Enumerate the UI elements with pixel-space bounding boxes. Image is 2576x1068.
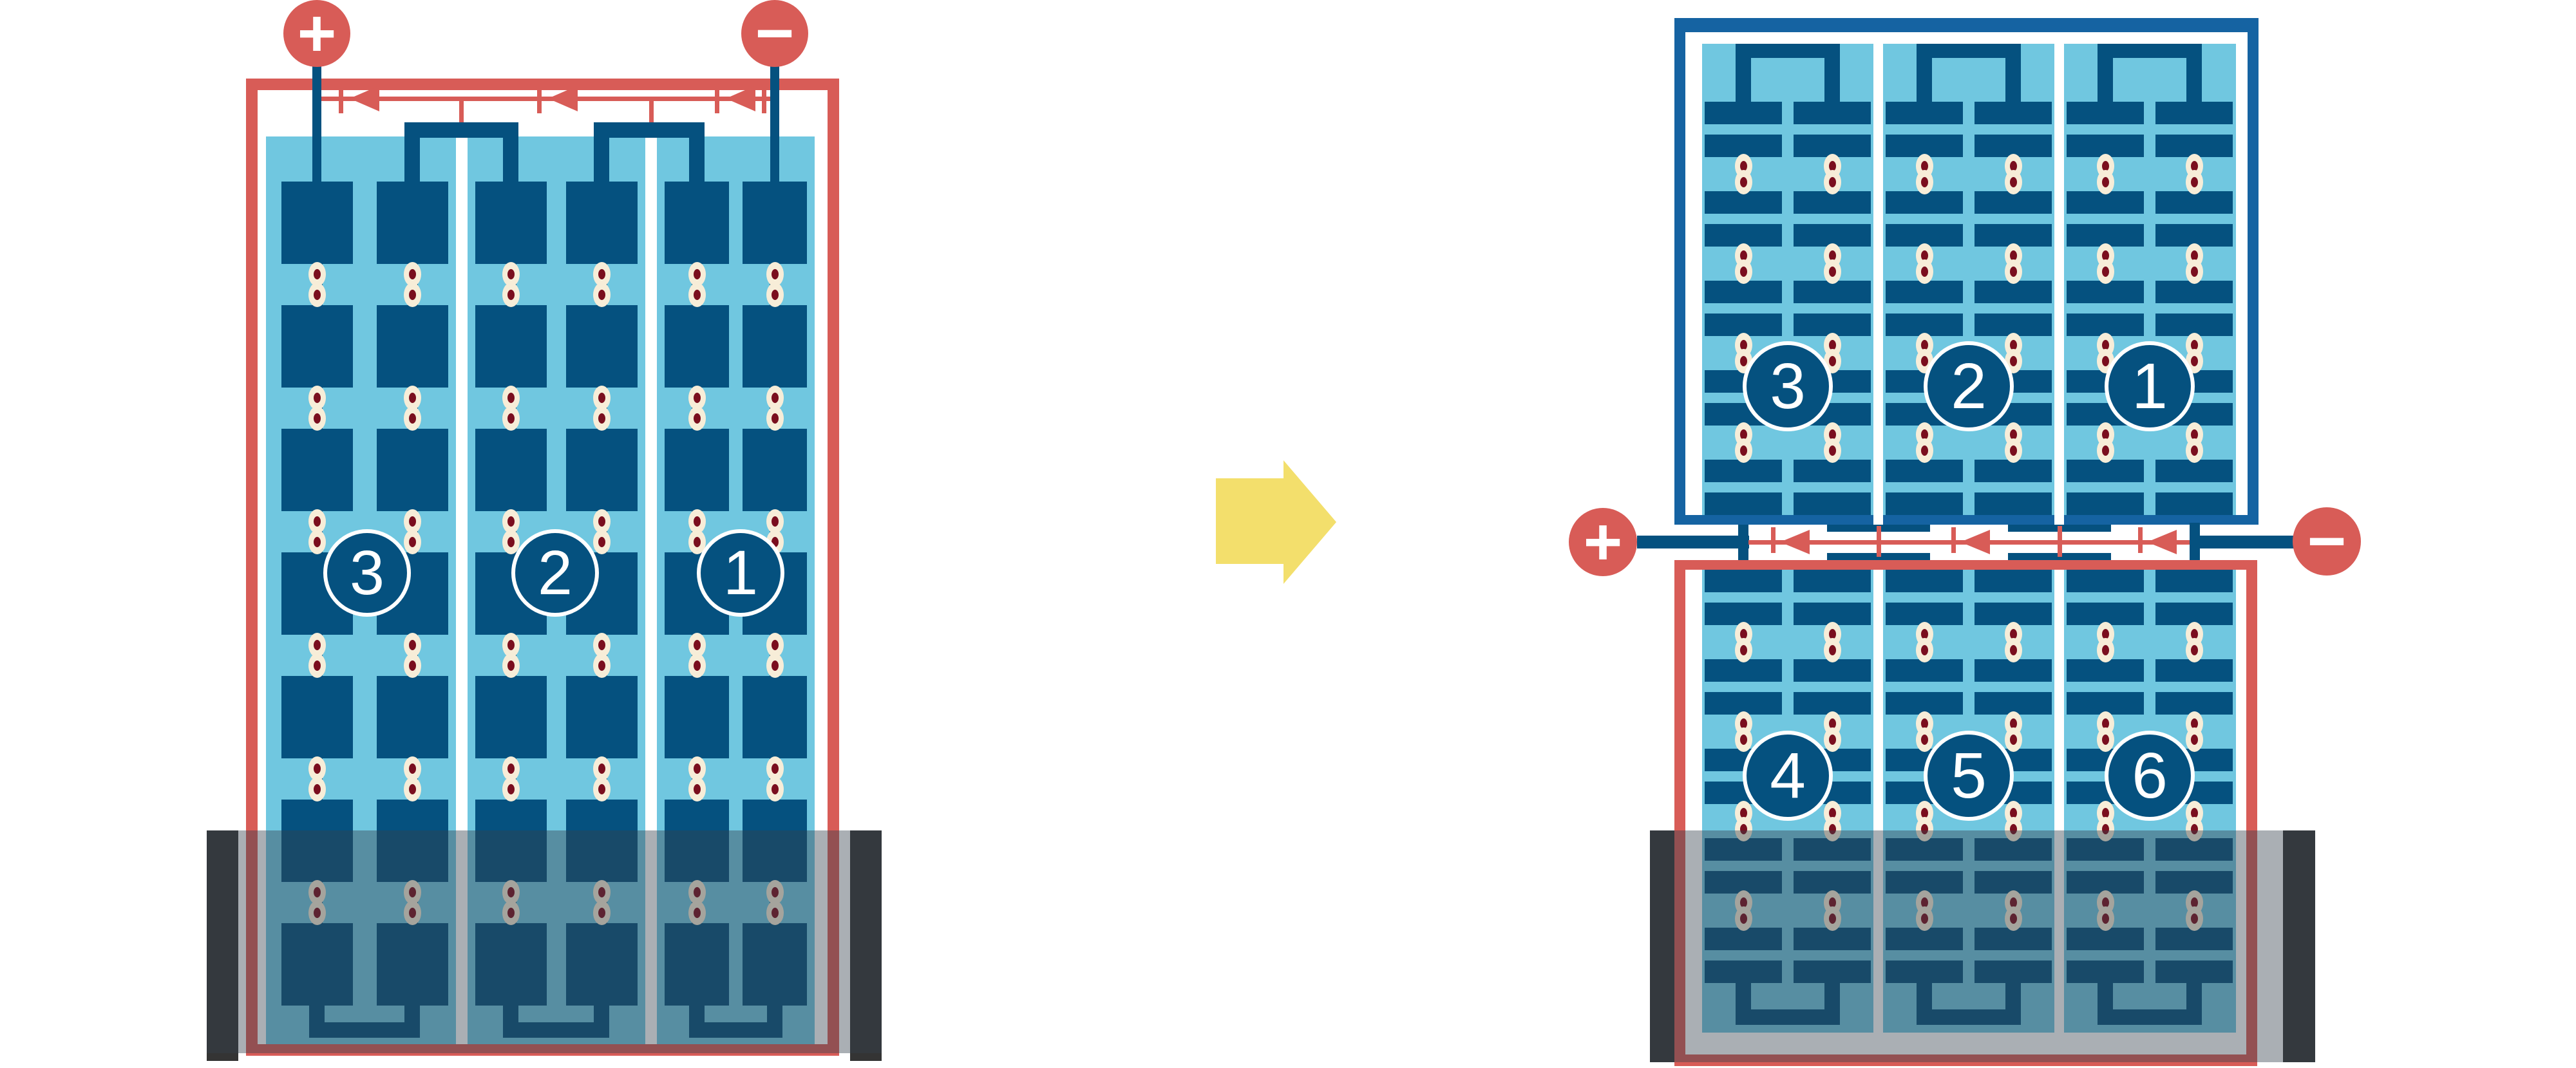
connector-dot-core [314, 764, 321, 774]
connector-dot-core [694, 290, 701, 300]
plate [2155, 281, 2233, 303]
connector-dot-core [598, 660, 605, 671]
connector-dot-core [507, 764, 515, 774]
connector-dot-core [314, 537, 321, 547]
plate [2067, 281, 2144, 303]
plate [1886, 460, 1963, 482]
left-cell-3-badge: 3 [323, 529, 411, 617]
connector-dot-core [1829, 356, 1836, 366]
tray-overlay [207, 830, 882, 1053]
plate [281, 676, 353, 758]
connector-dot-core [694, 764, 701, 774]
connector-dot-core [409, 640, 416, 650]
plate [1886, 570, 1963, 592]
connector-dot-core [1921, 445, 1928, 456]
plate [1886, 281, 1963, 303]
plate [377, 429, 448, 511]
connector-dot-core [2010, 445, 2017, 456]
top-bridge-bar [1736, 44, 1840, 58]
connector-dot-core [1921, 177, 1928, 187]
connector-dot-core [1829, 735, 1836, 745]
connector-dot-core [694, 393, 701, 403]
connector-dot-core [409, 764, 416, 774]
plate [377, 676, 448, 758]
connector-dot-core [2102, 735, 2109, 745]
current-line-tick [762, 85, 766, 113]
connector-dot-core [1740, 177, 1747, 187]
connector-dot-core [772, 269, 779, 279]
connector-dot-core [409, 393, 416, 403]
plate [665, 429, 729, 511]
plate [1794, 191, 1871, 214]
plate [2067, 102, 2144, 124]
top-bridge-bar [404, 122, 518, 138]
connector-dot-core [409, 537, 416, 547]
right-top-border-right [2248, 18, 2259, 525]
connector-dot-core [314, 269, 321, 279]
connector-dot-core [507, 640, 515, 650]
connector-dot-core [2010, 356, 2017, 366]
plate [1975, 460, 2052, 482]
plate [1705, 492, 1782, 515]
plus-bus-riser [1738, 525, 1748, 560]
plate [1975, 492, 2052, 515]
plate [377, 182, 448, 264]
right-top-cell-2-badge: 2 [1924, 341, 2014, 431]
top-bridge-bar [2098, 44, 2202, 58]
top-bridge-leg [1824, 58, 1840, 106]
plate [566, 676, 638, 758]
arrow-head [1283, 460, 1336, 584]
plate [475, 305, 547, 388]
left-plus-terminal-icon: + [283, 0, 350, 67]
minus-bus-bar [2200, 536, 2295, 548]
connector-dot-core [772, 640, 779, 650]
connector-dot-core [694, 784, 701, 794]
connector-dot-core [2191, 177, 2198, 187]
top-bridge-leg [2186, 58, 2202, 106]
battery-rewiring-diagram: + − 3 2 1 + − 3 2 1 4 5 6 [0, 0, 2576, 1068]
connector-dot-core [2191, 645, 2198, 655]
connector-dot-core [314, 516, 321, 527]
plate [743, 305, 807, 388]
connector-dot-core [2102, 177, 2109, 187]
connector-dot-core [2102, 356, 2109, 366]
plate [1705, 570, 1782, 592]
right-bottom-cell-6-badge: 6 [2105, 731, 2195, 821]
connector-dot-core [507, 516, 515, 527]
connector-dot-core [694, 537, 701, 547]
plate [475, 182, 547, 264]
top-bridge-leg [2098, 58, 2113, 106]
current-line [321, 97, 770, 101]
connector-dot-core [409, 269, 416, 279]
connector-dot-core [1740, 735, 1747, 745]
connector-dot-core [2010, 735, 2017, 745]
plate [2155, 191, 2233, 214]
plate [2067, 659, 2144, 682]
left-minus-terminal-icon: − [741, 0, 808, 67]
connector-dot-core [1740, 645, 1747, 655]
plate [377, 305, 448, 388]
plate [281, 305, 353, 388]
flow-arrowhead-icon [2147, 530, 2177, 554]
connector-dot-core [598, 764, 605, 774]
plate [2067, 460, 2144, 482]
plate [566, 429, 638, 511]
connector-dot-core [598, 516, 605, 527]
right-top-border-left [1674, 18, 1685, 525]
connector-dot-core [694, 640, 701, 650]
connector-dot-core [314, 660, 321, 671]
right-cell-divider [1873, 44, 1883, 515]
plate [2067, 570, 2144, 592]
connector-dot-core [2191, 445, 2198, 456]
connector-dot-core [1921, 267, 1928, 277]
connector-dot-core [694, 269, 701, 279]
connector-dot-core [598, 784, 605, 794]
connector-dot-core [409, 660, 416, 671]
connector-dot-core [772, 660, 779, 671]
connector-dot-core [1921, 735, 1928, 745]
plate [1705, 460, 1782, 482]
plate [2155, 460, 2233, 482]
connector-dot-core [409, 516, 416, 527]
plate [1705, 659, 1782, 682]
top-bridge-leg [1736, 58, 1751, 106]
plus-bus-bar [1637, 536, 1749, 548]
connector-dot-core [598, 269, 605, 279]
minus-bus-riser [2190, 523, 2200, 560]
plate [1975, 102, 2052, 124]
plate [1975, 281, 2052, 303]
plate [1886, 102, 1963, 124]
connector-dot-core [2010, 267, 2017, 277]
top-bridge-leg [2005, 58, 2021, 106]
connector-dot-core [1829, 645, 1836, 655]
connector-dot-core [772, 290, 779, 300]
flow-arrowhead-icon [1960, 530, 1990, 554]
flow-arrowhead-icon [548, 86, 578, 111]
current-line-tick [1877, 526, 1881, 557]
plate [743, 676, 807, 758]
right-bottom-cell-5-badge: 5 [1924, 731, 2014, 821]
plate [743, 182, 807, 264]
connector-dot-core [507, 537, 515, 547]
connector-dot-core [772, 413, 779, 424]
plate [475, 676, 547, 758]
connector-dot-core [598, 413, 605, 424]
plate [2155, 102, 2233, 124]
connector-dot-core [2191, 356, 2198, 366]
current-line-tick [1951, 527, 1956, 553]
connector-dot-core [598, 537, 605, 547]
connector-dot-core [2191, 735, 2198, 745]
plate [1794, 102, 1871, 124]
plate [1975, 570, 2052, 592]
connector-dot-core [314, 640, 321, 650]
right-top-border-bottom [1674, 515, 1873, 525]
plate [1975, 659, 2052, 682]
plate [281, 182, 353, 264]
right-top-border-bottom [2064, 515, 2259, 525]
top-bridge-leg [1917, 58, 1932, 106]
tray-overlay [1650, 830, 2315, 1062]
left-cell-2-badge: 2 [511, 529, 599, 617]
connector-dot-core [1921, 645, 1928, 655]
connector-dot-core [694, 516, 701, 527]
transform-arrow-icon [1216, 460, 1336, 584]
right-top-cell-3-badge: 3 [1743, 341, 1833, 431]
connector-dot-core [694, 413, 701, 424]
minus-terminal-wire [770, 64, 779, 188]
current-line-tick [1771, 527, 1776, 553]
plate [743, 429, 807, 511]
plate [665, 182, 729, 264]
right-top-cell-1-badge: 1 [2105, 341, 2195, 431]
right-top-border-top [1674, 18, 2259, 32]
left-cell-1-badge: 1 [697, 529, 784, 617]
plate [566, 305, 638, 388]
connector-dot-core [598, 640, 605, 650]
connector-dot-core [2102, 267, 2109, 277]
connector-dot-core [409, 784, 416, 794]
connector-dot-core [2102, 445, 2109, 456]
flow-arrowhead-icon [350, 86, 379, 111]
connector-dot-core [2102, 645, 2109, 655]
right-bottom-border-top [1674, 560, 2257, 570]
plate [1705, 191, 1782, 214]
plate [475, 429, 547, 511]
connector-dot-core [314, 290, 321, 300]
current-line-tick [2058, 526, 2062, 557]
right-plus-terminal-icon: + [1569, 508, 1637, 576]
plate [1794, 492, 1871, 515]
current-line-drop [649, 101, 654, 124]
connector-dot-core [1740, 445, 1747, 456]
connector-dot-core [1829, 267, 1836, 277]
flow-arrowhead-icon [1780, 530, 1810, 554]
plate [1886, 492, 1963, 515]
plate [665, 676, 729, 758]
connector-dot-core [507, 393, 515, 403]
connector-dot-core [314, 413, 321, 424]
right-bottom-cell-4-badge: 4 [1743, 731, 1833, 821]
connector-dot-core [409, 290, 416, 300]
connector-dot-core [507, 290, 515, 300]
current-line-tick [339, 85, 343, 113]
connector-dot-core [2191, 267, 2198, 277]
plate [2155, 570, 2233, 592]
flow-arrowhead-icon [726, 86, 755, 111]
connector-dot-core [1921, 356, 1928, 366]
plate [1705, 102, 1782, 124]
connector-dot-core [772, 393, 779, 403]
right-top-border-bottom [1883, 515, 2054, 525]
connector-dot-core [507, 269, 515, 279]
plate [1794, 281, 1871, 303]
connector-dot-core [2010, 645, 2017, 655]
current-line-tick [537, 85, 542, 113]
current-line-tick [715, 85, 719, 113]
arrow-shaft [1216, 478, 1283, 564]
plate [1794, 659, 1871, 682]
plate [1794, 460, 1871, 482]
connector-dot-core [1829, 445, 1836, 456]
plus-terminal-wire [312, 64, 321, 188]
plate [2155, 492, 2233, 515]
connector-dot-core [409, 413, 416, 424]
connector-dot-core [772, 516, 779, 527]
current-line-drop [459, 101, 464, 124]
connector-dot-core [598, 393, 605, 403]
top-bridge-bar [594, 122, 705, 138]
connector-dot-core [507, 413, 515, 424]
connector-dot-core [1829, 177, 1836, 187]
connector-dot-core [314, 784, 321, 794]
plate [281, 429, 353, 511]
plate [1886, 659, 1963, 682]
right-cell-divider [2054, 44, 2064, 515]
connector-dot-core [314, 393, 321, 403]
plate [1975, 191, 2052, 214]
connector-dot-core [772, 764, 779, 774]
connector-dot-core [2010, 177, 2017, 187]
connector-dot-core [1740, 267, 1747, 277]
plate [566, 182, 638, 264]
right-minus-terminal-icon: − [2293, 507, 2361, 576]
connector-dot-core [1740, 356, 1747, 366]
connector-dot-core [772, 784, 779, 794]
connector-dot-core [507, 784, 515, 794]
plate [2067, 191, 2144, 214]
plate [1705, 281, 1782, 303]
plate [2067, 492, 2144, 515]
plate [1794, 570, 1871, 592]
plate [665, 305, 729, 388]
connector-dot-core [507, 660, 515, 671]
connector-dot-core [598, 290, 605, 300]
plate [1886, 191, 1963, 214]
top-bridge-bar [1917, 44, 2021, 58]
connector-dot-core [694, 660, 701, 671]
plate [2155, 659, 2233, 682]
current-line-tick [2138, 527, 2143, 553]
